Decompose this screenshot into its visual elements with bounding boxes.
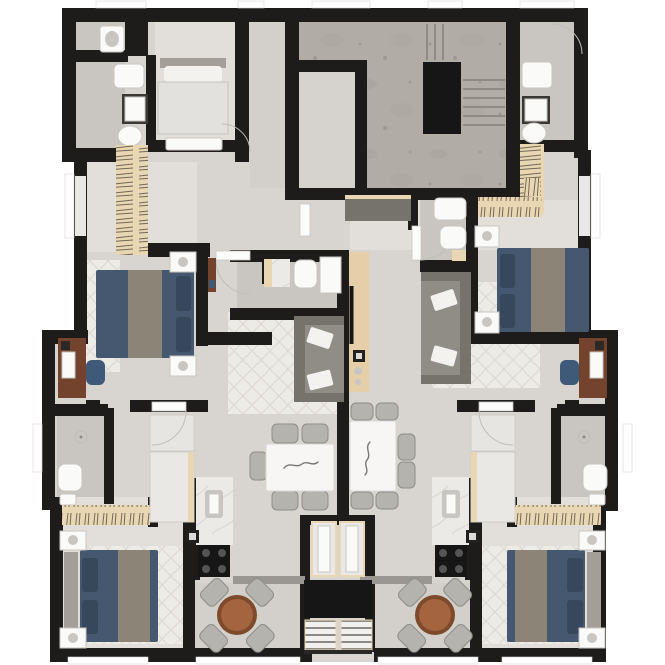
drain-dot — [583, 436, 586, 439]
wall-wing-right-divider — [551, 408, 561, 504]
double-bed-left — [96, 252, 196, 376]
lamp — [587, 535, 597, 545]
bath-shelf — [452, 250, 466, 261]
window-sill-left — [65, 174, 74, 238]
dining-chair — [250, 452, 267, 480]
dining-chair — [351, 492, 373, 509]
window-sill-bottom — [502, 657, 592, 664]
glass-pane — [346, 526, 358, 572]
vanity-wood — [264, 259, 272, 287]
window-sill-top — [520, 1, 574, 8]
window-sill-top — [96, 1, 146, 8]
fridge-cabinet — [471, 415, 515, 451]
toilet — [522, 123, 546, 143]
burner — [202, 565, 210, 573]
bed-headboard — [587, 552, 601, 640]
wall-exterior-upper-right — [574, 8, 588, 158]
desk-papers — [62, 352, 75, 378]
toilet-2 — [118, 126, 142, 146]
lamp — [587, 633, 597, 643]
sliding-door-track — [233, 576, 305, 584]
bed-pillow — [82, 558, 98, 592]
lamp — [482, 317, 492, 327]
dining-chair — [351, 403, 373, 420]
wardrobe-closet-right-2 — [524, 178, 540, 196]
door-leaf — [479, 402, 513, 411]
wall-core-inner-v — [355, 72, 367, 200]
desk-chair — [560, 360, 579, 385]
wall-bath-right-bottom — [420, 260, 470, 272]
door-leaf — [412, 226, 421, 260]
wall-art-inner — [189, 533, 196, 540]
shelf-item — [209, 280, 215, 288]
sofa-arm — [421, 272, 471, 281]
bed-pillow — [567, 558, 583, 592]
window-left — [75, 176, 86, 236]
sofa-back — [294, 316, 305, 402]
wall-exterior-upper-left — [62, 8, 76, 158]
deco-knob — [354, 367, 362, 375]
lamp — [482, 231, 492, 241]
window-right — [579, 176, 590, 236]
dining-chair — [272, 491, 298, 510]
hanging-closet — [515, 505, 601, 525]
wall-balcony-left-divider — [183, 503, 195, 650]
single-bed — [158, 82, 228, 134]
sideboard — [345, 199, 411, 221]
bed-runner — [515, 550, 547, 642]
desk-chair — [86, 360, 105, 385]
window-sill-top — [312, 1, 370, 8]
drain-dot — [80, 436, 83, 439]
dining-table — [350, 421, 396, 491]
deco-knob — [355, 379, 361, 385]
sink — [589, 494, 605, 505]
dining-chair — [398, 434, 415, 460]
window-sill-top — [238, 1, 264, 8]
cooktop — [435, 545, 467, 577]
lamp — [68, 633, 78, 643]
bed-pillow — [500, 294, 515, 328]
sink — [60, 494, 76, 505]
tv-screen — [350, 286, 354, 344]
wardrobe-closet-right — [478, 197, 542, 217]
window-sill-bottom — [196, 657, 300, 664]
tv-media-wall — [349, 252, 369, 392]
dining-chair — [272, 424, 298, 443]
kitchen-cabinets — [471, 452, 515, 522]
window-sill-right — [591, 174, 600, 238]
cabinet-trim — [188, 452, 194, 522]
dining-chair — [398, 462, 415, 488]
living-room-right — [421, 272, 471, 384]
round-table — [419, 599, 451, 631]
sink — [522, 62, 552, 88]
elevator-shaft — [423, 62, 461, 134]
desk-lamp — [61, 341, 70, 350]
desk-lamp — [595, 341, 604, 350]
bed-pillow — [500, 254, 515, 288]
lamp — [178, 257, 188, 267]
wall-balcony-right-divider — [470, 503, 482, 650]
glass-pane — [318, 526, 330, 572]
sofa-arm — [421, 375, 471, 384]
bed-pillow — [176, 317, 191, 352]
dining-table — [266, 444, 334, 491]
wall-art-inner — [469, 533, 476, 540]
bed-runner — [531, 248, 565, 332]
sofa-arm — [294, 316, 344, 325]
toilet — [294, 260, 317, 288]
shower-tray — [320, 257, 341, 293]
sink — [434, 198, 466, 220]
shower-tray — [525, 99, 547, 121]
bed-runner — [118, 550, 150, 642]
wall-entry-left-bottom — [196, 332, 272, 345]
wall-wing-left-top — [50, 404, 108, 416]
sink-basin — [209, 494, 219, 514]
ac-unit — [305, 620, 336, 650]
bed-headboard — [64, 552, 78, 640]
toilet — [114, 64, 144, 88]
hanging-closet — [62, 505, 150, 525]
cabinet-trim — [471, 452, 477, 522]
sofa-back — [460, 272, 471, 384]
dining-chair — [302, 424, 328, 443]
wall-wing-left-divider — [104, 408, 114, 504]
wall-wing-right-top — [557, 404, 615, 416]
bed-runner — [128, 270, 162, 358]
toilet — [583, 464, 607, 491]
floor-bath-wing-right — [561, 414, 608, 506]
window-sill-bottom — [68, 657, 148, 664]
duct-block — [304, 580, 372, 618]
burner — [439, 565, 447, 573]
dining-chair — [302, 491, 328, 510]
window-sill-top — [428, 1, 462, 8]
toilet — [58, 464, 82, 491]
door-leaf — [300, 204, 310, 236]
ac-unit — [341, 620, 372, 650]
floor-core-lobby — [299, 72, 355, 188]
wall-tl-step — [62, 148, 120, 162]
burner — [218, 565, 226, 573]
sofa-arm — [294, 393, 344, 402]
wall-tl-divider — [125, 8, 148, 56]
sideboard-trim — [345, 195, 411, 199]
toilet — [440, 226, 466, 249]
door-leaf — [152, 402, 186, 411]
fridge-cabinet — [150, 415, 194, 451]
living-room-left — [294, 316, 344, 402]
dining-chair — [376, 403, 398, 420]
kitchen-cabinets — [150, 452, 194, 522]
window-sill-bottom — [378, 657, 478, 664]
cooktop — [198, 545, 230, 577]
dining-chair — [376, 492, 398, 509]
bed-pillows — [164, 66, 222, 82]
wall-core-inner-h — [297, 60, 367, 72]
wall-core-right — [506, 8, 520, 200]
burner — [455, 549, 463, 557]
lamp — [178, 361, 188, 371]
wall-wing-left — [42, 330, 55, 510]
sink-basin — [446, 494, 456, 514]
shower-tray — [125, 97, 145, 121]
burner — [455, 565, 463, 573]
sink-basin — [105, 31, 119, 47]
wall-art-inner — [356, 353, 362, 359]
burner — [202, 549, 210, 557]
wall-bedroom-left-right — [196, 250, 208, 346]
window-sill-wing-right — [623, 424, 632, 472]
wall-core-left — [285, 8, 299, 200]
floor-bath-wing-left — [57, 414, 104, 506]
lamp — [68, 535, 78, 545]
door-leaf — [216, 251, 250, 260]
shaft-rail — [304, 650, 372, 654]
floor-plan-canvas — [0, 0, 665, 665]
round-table — [221, 599, 253, 631]
bed-pillow — [176, 276, 191, 311]
floor-corridor-top — [250, 22, 285, 188]
wardrobe-closet-left — [116, 145, 148, 255]
window-sill-wing-left — [33, 424, 42, 472]
floor-plan-page — [0, 0, 665, 665]
foot-bench — [166, 138, 222, 150]
burner — [439, 549, 447, 557]
burner — [218, 549, 226, 557]
desk-papers — [590, 352, 603, 378]
